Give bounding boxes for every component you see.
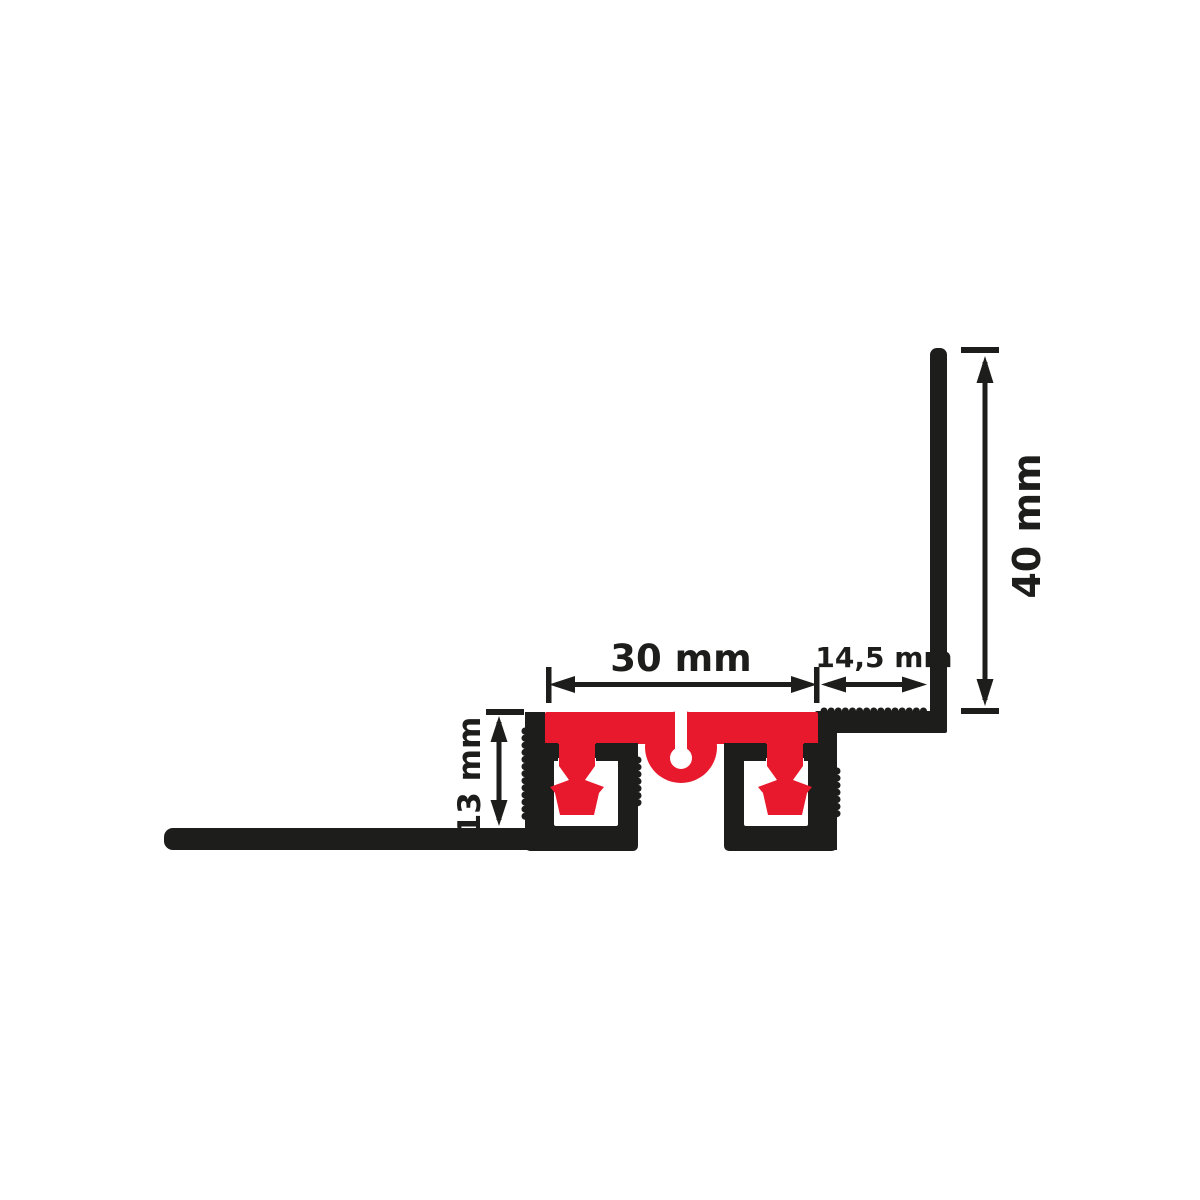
dim30-arrow-left [549,676,575,693]
hook-right-channel-inner [724,743,766,761]
dim13-arrow-top [491,716,508,742]
dim40-label: 40 mm [1005,453,1049,598]
dim40-tick-bottom [961,708,999,714]
dim145-arrow-left [821,677,846,693]
dim145-label: 14,5 mm [815,641,952,674]
expansion-joint-profile-drawing: 30 mm 14,5 mm 40 mm [0,0,1200,1200]
dimension-joint-width: 30 mm [546,637,820,703]
dim30-line [556,682,808,687]
right-side-wall [815,714,837,850]
dimension-upstand-height: 40 mm [961,347,1049,714]
hook-left-channel-outer [543,743,558,761]
hook-right-channel-outer [804,743,819,761]
dim13-arrow-bottom [491,800,508,826]
dim40-line [983,362,988,700]
vertical-upstand [930,348,947,733]
dim13-label: 13 mm [452,717,488,836]
dim40-arrow-top [977,356,994,383]
dim40-tick-top [961,347,999,353]
technical-drawing-page: 30 mm 14,5 mm 40 mm [0,0,1200,1200]
keyhole-hole [670,747,692,769]
dim30-label: 30 mm [610,637,751,680]
hook-left-channel-inner [596,743,638,761]
dimension-profile-depth: 13 mm [452,709,524,835]
dim13-tick-top [486,709,524,715]
dim30-arrow-right [791,676,817,693]
dim40-arrow-bottom [977,679,994,706]
dim145-arrow-right [902,677,927,693]
